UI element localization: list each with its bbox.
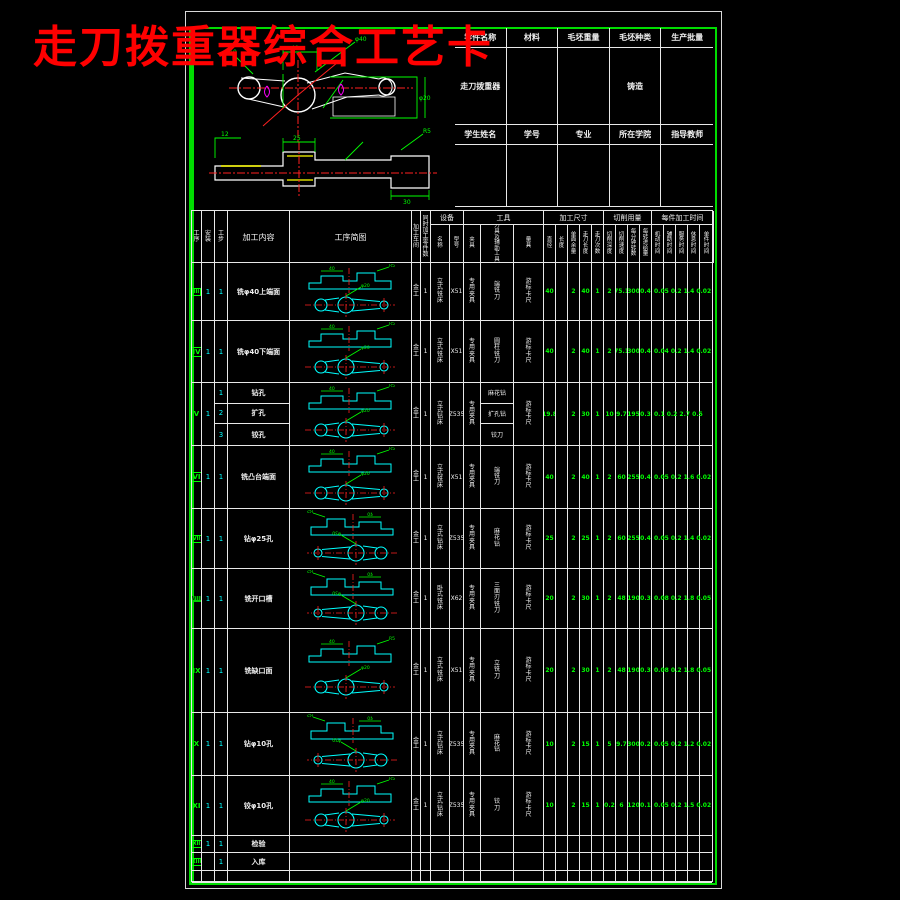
op-value: 1 bbox=[592, 569, 604, 628]
op-tool: 端铣刀 bbox=[481, 263, 514, 320]
op-step-no: 1 bbox=[215, 446, 228, 508]
op-value: 2 bbox=[604, 446, 616, 508]
op-value: 120 bbox=[628, 776, 640, 835]
op-value: 25 bbox=[544, 509, 556, 568]
op-qty bbox=[421, 836, 431, 852]
proc-row bbox=[192, 871, 712, 883]
op-workshop: 金工 bbox=[412, 713, 421, 775]
op-equipment bbox=[431, 871, 450, 882]
op-value: 48 bbox=[616, 629, 628, 712]
op-equipment-model: X62 bbox=[450, 569, 464, 628]
op-seq bbox=[192, 871, 202, 882]
op-seq: VI bbox=[192, 446, 202, 508]
op-tool: 麻花钻 bbox=[481, 713, 514, 775]
svg-text:R5: R5 bbox=[389, 264, 395, 269]
proc-group-header: 每件加工时间 bbox=[652, 211, 714, 225]
info-table: 零件名称材料毛坯重量毛坯种类生产批量走刀拨重器铸造学生姓名学号专业所在学院指导教… bbox=[455, 28, 713, 207]
svg-text:R5: R5 bbox=[423, 128, 431, 135]
proc-row: IV11铣φ40下端面圆柱铣刀40R5φ20金工1立式铣床X51专用夹具游标卡尺… bbox=[192, 321, 712, 383]
proc-col-header: 每分钟转数 bbox=[628, 225, 640, 263]
op-value: 5 bbox=[604, 713, 616, 775]
op-value bbox=[544, 853, 556, 870]
cad-canvas: 40φ40R10φ202512R530 零件名称材料毛坯重量毛坯种类生产批量走刀… bbox=[0, 0, 900, 900]
op-step-no: 1 bbox=[215, 853, 228, 870]
op-equipment-model: X51 bbox=[450, 629, 464, 712]
op-time-cell bbox=[700, 871, 714, 882]
op-times: 0.08 0.2 1.8 0.05 bbox=[654, 595, 711, 602]
op-sketch-svg: 40R5φ20 bbox=[291, 322, 411, 381]
op-value: 19.8 bbox=[544, 383, 556, 445]
op-seq: X bbox=[192, 713, 202, 775]
op-value: 1 bbox=[592, 383, 604, 445]
proc-col-header: 量具 bbox=[514, 225, 544, 263]
op-qty: 1 bbox=[421, 713, 431, 775]
op-value: 2 bbox=[568, 713, 580, 775]
op-tool: 扩孔钻 bbox=[481, 404, 514, 425]
op-value: 190 bbox=[628, 569, 640, 628]
op-value bbox=[544, 871, 556, 882]
op-fixture: 专用夹具 bbox=[464, 263, 481, 320]
op-equipment-model: Z535 bbox=[450, 509, 464, 568]
op-value: 255 bbox=[628, 509, 640, 568]
op-content bbox=[228, 871, 290, 882]
op-value: 2 bbox=[568, 509, 580, 568]
op-sketch bbox=[290, 836, 412, 852]
op-tool bbox=[481, 871, 514, 882]
svg-text:φ20: φ20 bbox=[361, 665, 370, 671]
svg-text:40: 40 bbox=[367, 512, 373, 518]
op-time-cell bbox=[688, 836, 700, 852]
op-value: 0.4 bbox=[640, 263, 652, 320]
op-value: 60 bbox=[616, 446, 628, 508]
op-fixture: 专用夹具 bbox=[464, 509, 481, 568]
op-value bbox=[616, 836, 628, 852]
op-content: 钻孔 bbox=[228, 383, 290, 404]
svg-text:25: 25 bbox=[293, 135, 301, 142]
op-equipment: 立式铣床 bbox=[431, 446, 450, 508]
op-value: 40 bbox=[580, 446, 592, 508]
op-step-no bbox=[215, 871, 228, 882]
op-time-cell bbox=[676, 871, 688, 882]
op-value: 60 bbox=[616, 509, 628, 568]
op-value: 6 bbox=[616, 776, 628, 835]
proc-col-header: 机动时间 bbox=[652, 225, 664, 263]
proc-col-header: 工序简图 bbox=[290, 211, 412, 263]
proc-col-header: 型号 bbox=[450, 225, 464, 263]
info-header: 材料 bbox=[507, 28, 559, 48]
op-value bbox=[604, 836, 616, 852]
op-sketch-svg: 40R5φ20 bbox=[291, 264, 411, 319]
op-value: 2 bbox=[568, 776, 580, 835]
op-content: 入库 bbox=[228, 853, 290, 870]
op-workshop: 金工 bbox=[412, 321, 421, 382]
svg-text:R5: R5 bbox=[306, 510, 312, 515]
op-times: 0.05 0.2 1.4 0.02 bbox=[654, 288, 711, 295]
op-sketch: 40R5φ20 bbox=[290, 446, 412, 508]
op-setup: 1 bbox=[202, 446, 215, 508]
op-setup bbox=[202, 871, 215, 882]
svg-text:φ20: φ20 bbox=[361, 408, 370, 414]
op-value: 75.1 bbox=[616, 263, 628, 320]
op-time-cell bbox=[700, 853, 714, 870]
op-tool bbox=[481, 836, 514, 852]
op-sketch: 40R5φ20 bbox=[290, 569, 412, 628]
op-setup: 1 bbox=[202, 713, 215, 775]
proc-col-header: 走刀长度 bbox=[580, 225, 592, 263]
op-gauge bbox=[514, 871, 544, 882]
op-value bbox=[544, 836, 556, 852]
op-value: 75.1 bbox=[616, 321, 628, 382]
op-time-cell bbox=[664, 836, 676, 852]
svg-text:40: 40 bbox=[329, 266, 335, 272]
op-content: 扩孔 bbox=[228, 404, 290, 425]
svg-text:R5: R5 bbox=[389, 636, 395, 642]
op-value: 0.4 bbox=[640, 446, 652, 508]
op-seq: IX bbox=[192, 629, 202, 712]
op-content: 铰孔 bbox=[228, 424, 290, 445]
svg-text:40: 40 bbox=[329, 324, 335, 330]
op-seq: VIII bbox=[192, 569, 202, 628]
op-value: 300 bbox=[628, 263, 640, 320]
op-step-no: 2 bbox=[215, 404, 228, 425]
op-value: 9.7 bbox=[616, 383, 628, 445]
op-setup: 1 bbox=[202, 629, 215, 712]
svg-text:φ20: φ20 bbox=[332, 591, 341, 597]
op-time-cell bbox=[676, 836, 688, 852]
op-sketch-svg: 40R5φ20 bbox=[291, 510, 411, 567]
op-sketch: 40R5φ20 bbox=[290, 629, 412, 712]
svg-text:R5: R5 bbox=[306, 714, 312, 719]
proc-row: VIII11铣开口槽三面刃铣刀40R5φ20金工1卧式铣床X62专用夹具游标卡尺… bbox=[192, 569, 712, 629]
info-value bbox=[507, 48, 559, 125]
op-value bbox=[628, 871, 640, 882]
op-value bbox=[592, 836, 604, 852]
op-sketch-svg: 40R5φ20 bbox=[291, 777, 411, 834]
op-content: 检验 bbox=[228, 836, 290, 852]
op-tool: 端铣刀 bbox=[481, 446, 514, 508]
proc-group-header: 加工尺寸 bbox=[544, 211, 604, 225]
proc-col-header: 单件时间 bbox=[700, 225, 714, 263]
op-value: 1 bbox=[592, 629, 604, 712]
op-equipment bbox=[431, 836, 450, 852]
op-step-no: 1 bbox=[215, 263, 228, 320]
op-value: 2 bbox=[604, 321, 616, 382]
proc-row: VII11钻φ25孔麻花钻40R5φ20金工1立式钻床Z535专用夹具游标卡尺2… bbox=[192, 509, 712, 569]
op-value: 2 bbox=[568, 383, 580, 445]
op-value: 2 bbox=[568, 263, 580, 320]
info-value bbox=[661, 48, 713, 125]
op-value: 0.2 bbox=[640, 713, 652, 775]
op-value: 2 bbox=[568, 569, 580, 628]
op-value bbox=[640, 871, 652, 882]
op-setup: 1 bbox=[202, 569, 215, 628]
op-step-no: 3 bbox=[215, 424, 228, 445]
op-equipment: 立式铣床 bbox=[431, 629, 450, 712]
op-seq: XII bbox=[192, 836, 202, 852]
info-header: 毛坯重量 bbox=[558, 28, 610, 48]
op-value: 48 bbox=[616, 569, 628, 628]
info-value bbox=[558, 145, 610, 207]
op-qty bbox=[421, 871, 431, 882]
op-seq: VII bbox=[192, 509, 202, 568]
op-workshop: 金工 bbox=[412, 776, 421, 835]
op-equipment: 立式钻床 bbox=[431, 509, 450, 568]
op-seq: IV bbox=[192, 321, 202, 382]
op-tool: 三面刃铣刀 bbox=[481, 569, 514, 628]
op-fixture: 专用夹具 bbox=[464, 446, 481, 508]
proc-group-header: 设备 bbox=[431, 211, 464, 225]
proc-row: XI11铰φ10孔铰刀40R5φ20金工1立式钻床Z535专用夹具游标卡尺102… bbox=[192, 776, 712, 836]
op-equipment-model: X51 bbox=[450, 263, 464, 320]
op-sketch-svg: 40R5φ20 bbox=[291, 384, 411, 444]
proc-col-header: 辅助时间 bbox=[664, 225, 676, 263]
svg-text:φ20: φ20 bbox=[332, 738, 341, 744]
info-header: 指导教师 bbox=[661, 125, 713, 145]
op-fixture: 专用夹具 bbox=[464, 713, 481, 775]
op-value: 10 bbox=[604, 383, 616, 445]
op-sketch bbox=[290, 871, 412, 882]
op-step-no: 1 bbox=[215, 713, 228, 775]
proc-col-header: 休息时间 bbox=[688, 225, 700, 263]
info-value bbox=[610, 145, 662, 207]
info-header: 学生姓名 bbox=[455, 125, 507, 145]
op-tool: 铰刀 bbox=[481, 424, 514, 445]
process-table: 工序安装工步加工内容工序简图加工车间同时加工零件数设备名称型号工具夹具刀具及辅助… bbox=[191, 210, 713, 882]
proc-col-header: 走刀次数 bbox=[592, 225, 604, 263]
op-fixture: 专用夹具 bbox=[464, 383, 481, 445]
op-qty: 1 bbox=[421, 383, 431, 445]
op-workshop bbox=[412, 836, 421, 852]
op-sketch: 40R5φ20 bbox=[290, 263, 412, 320]
op-equipment-model bbox=[450, 836, 464, 852]
proc-col-header: 刀具及辅助工具 bbox=[481, 225, 514, 263]
op-value bbox=[556, 383, 568, 445]
op-value bbox=[556, 629, 568, 712]
op-step-no: 1 bbox=[215, 776, 228, 835]
op-time-cell bbox=[688, 871, 700, 882]
op-fixture bbox=[464, 871, 481, 882]
op-setup: 1 bbox=[202, 509, 215, 568]
op-value: 0.3 bbox=[640, 383, 652, 445]
op-time-cell bbox=[688, 853, 700, 870]
op-seq: XI bbox=[192, 776, 202, 835]
svg-text:R5: R5 bbox=[306, 570, 312, 575]
op-value: 40 bbox=[580, 263, 592, 320]
op-value bbox=[616, 871, 628, 882]
op-tool: 麻花钻 bbox=[481, 509, 514, 568]
op-sketch-svg: 40R5φ20 bbox=[291, 447, 411, 507]
op-equipment-model bbox=[450, 871, 464, 882]
info-header: 毛坯种类 bbox=[610, 28, 662, 48]
op-workshop: 金工 bbox=[412, 509, 421, 568]
op-times: 0.05 0.2 1.2 0.02 bbox=[654, 741, 711, 748]
op-equipment: 立式钻床 bbox=[431, 713, 450, 775]
op-value bbox=[580, 853, 592, 870]
op-time-cell bbox=[652, 853, 664, 870]
proc-col-header: 加工车间 bbox=[412, 211, 421, 263]
op-gauge: 游标卡尺 bbox=[514, 383, 544, 445]
op-qty: 1 bbox=[421, 569, 431, 628]
proc-group-header: 切削用量 bbox=[604, 211, 652, 225]
op-sketch: 40R5φ20 bbox=[290, 383, 412, 445]
op-value: 190 bbox=[628, 629, 640, 712]
op-seq: V bbox=[192, 383, 202, 445]
op-gauge: 游标卡尺 bbox=[514, 509, 544, 568]
op-value: 1 bbox=[592, 321, 604, 382]
op-content: 铣缺口面 bbox=[228, 629, 290, 712]
op-sketch-svg: 40R5φ20 bbox=[291, 630, 411, 711]
svg-text:40: 40 bbox=[367, 572, 373, 578]
op-content: 钻φ25孔 bbox=[228, 509, 290, 568]
op-value: 2 bbox=[604, 569, 616, 628]
op-workshop bbox=[412, 853, 421, 870]
proc-header: 工序安装工步加工内容工序简图加工车间同时加工零件数设备名称型号工具夹具刀具及辅助… bbox=[192, 211, 714, 263]
proc-row: X11钻φ10孔麻花钻40R5φ20金工1立式钻床Z535专用夹具游标卡尺102… bbox=[192, 713, 712, 776]
svg-text:φ20: φ20 bbox=[361, 471, 370, 477]
op-qty: 1 bbox=[421, 776, 431, 835]
op-gauge: 游标卡尺 bbox=[514, 446, 544, 508]
proc-col-header: 安装 bbox=[202, 211, 215, 263]
op-value: 2 bbox=[604, 629, 616, 712]
op-value: 1 bbox=[592, 446, 604, 508]
proc-col-header: 切削速度 bbox=[616, 225, 628, 263]
svg-text:φ20: φ20 bbox=[332, 531, 341, 537]
proc-col-header: 单面余量 bbox=[568, 225, 580, 263]
proc-group-header: 工具 bbox=[464, 211, 544, 225]
op-value bbox=[592, 871, 604, 882]
op-equipment-model: Z535 bbox=[450, 383, 464, 445]
proc-col-header: 每转进给量 bbox=[640, 225, 652, 263]
op-value: 40 bbox=[544, 321, 556, 382]
op-value: 40 bbox=[544, 446, 556, 508]
op-step-no: 1 bbox=[215, 383, 228, 404]
info-value bbox=[455, 145, 507, 207]
op-fixture bbox=[464, 853, 481, 870]
op-gauge: 游标卡尺 bbox=[514, 263, 544, 320]
op-content: 铣φ40下端面 bbox=[228, 321, 290, 382]
op-value bbox=[628, 836, 640, 852]
op-tool bbox=[481, 853, 514, 870]
proc-col-header: 工步 bbox=[215, 211, 228, 263]
op-value bbox=[568, 871, 580, 882]
op-workshop: 金工 bbox=[412, 446, 421, 508]
proc-col-header: 切削深度 bbox=[604, 225, 616, 263]
svg-text:φ20: φ20 bbox=[361, 798, 370, 804]
op-value: 25 bbox=[580, 509, 592, 568]
op-qty: 1 bbox=[421, 263, 431, 320]
info-header: 生产批量 bbox=[661, 28, 713, 48]
op-value bbox=[592, 853, 604, 870]
info-header: 所在学院 bbox=[610, 125, 662, 145]
svg-text:40: 40 bbox=[367, 716, 373, 722]
op-value: 9.7 bbox=[616, 713, 628, 775]
info-value bbox=[661, 145, 713, 207]
op-value: 2 bbox=[568, 629, 580, 712]
info-header: 学号 bbox=[507, 125, 559, 145]
op-value bbox=[556, 836, 568, 852]
op-gauge: 游标卡尺 bbox=[514, 321, 544, 382]
op-equipment: 立式钻床 bbox=[431, 383, 450, 445]
op-time-cell bbox=[652, 836, 664, 852]
op-gauge bbox=[514, 853, 544, 870]
svg-text:12: 12 bbox=[221, 131, 229, 138]
svg-text:40: 40 bbox=[329, 779, 335, 785]
op-qty: 1 bbox=[421, 321, 431, 382]
proc-row: IX11铣缺口面立铣刀40R5φ20金工1立式铣床X51专用夹具游标卡尺2023… bbox=[192, 629, 712, 713]
op-value: 10 bbox=[544, 776, 556, 835]
svg-text:R5: R5 bbox=[389, 777, 395, 782]
op-tool: 立铣刀 bbox=[481, 629, 514, 712]
op-time-cell bbox=[700, 836, 714, 852]
op-time-cell bbox=[664, 853, 676, 870]
proc-row: VI11铣凸台端面端铣刀40R5φ20金工1立式铣床X51专用夹具游标卡尺402… bbox=[192, 446, 712, 509]
op-value: 10 bbox=[544, 713, 556, 775]
proc-col-header: 夹具 bbox=[464, 225, 481, 263]
op-value: 1 bbox=[592, 263, 604, 320]
proc-col-header: 名称 bbox=[431, 225, 450, 263]
op-value: 30 bbox=[580, 629, 592, 712]
svg-text:φ20: φ20 bbox=[361, 283, 370, 289]
svg-text:40: 40 bbox=[329, 386, 335, 392]
svg-text:R5: R5 bbox=[389, 384, 395, 389]
op-sketch bbox=[290, 853, 412, 870]
op-value: 0.1 bbox=[640, 776, 652, 835]
info-value bbox=[558, 48, 610, 125]
op-sketch: 40R5φ20 bbox=[290, 776, 412, 835]
op-equipment: 立式钻床 bbox=[431, 776, 450, 835]
op-value: 30 bbox=[580, 383, 592, 445]
op-workshop: 金工 bbox=[412, 383, 421, 445]
sheet-title: 走刀拨重器综合工艺卡 bbox=[33, 26, 493, 70]
op-value: 15 bbox=[580, 713, 592, 775]
op-qty bbox=[421, 853, 431, 870]
op-qty: 1 bbox=[421, 629, 431, 712]
svg-text:40: 40 bbox=[329, 639, 335, 645]
op-value bbox=[568, 853, 580, 870]
op-workshop: 金工 bbox=[412, 629, 421, 712]
svg-text:40: 40 bbox=[329, 449, 335, 455]
op-setup: 1 bbox=[202, 836, 215, 852]
op-value bbox=[628, 853, 640, 870]
op-setup: 1 bbox=[202, 263, 215, 320]
proc-row: III11铣φ40上端面端铣刀40R5φ20金工1立式铣床X51专用夹具游标卡尺… bbox=[192, 263, 712, 321]
op-equipment-model: X51 bbox=[450, 321, 464, 382]
op-value: 255 bbox=[628, 446, 640, 508]
op-fixture: 专用夹具 bbox=[464, 629, 481, 712]
op-times: 0.05 0.2 1.4 0.02 bbox=[654, 535, 711, 542]
op-value bbox=[580, 836, 592, 852]
op-value: 0.2 bbox=[604, 776, 616, 835]
op-setup: 1 bbox=[202, 321, 215, 382]
op-qty: 1 bbox=[421, 446, 431, 508]
op-step-no: 1 bbox=[215, 629, 228, 712]
op-time-cell bbox=[664, 871, 676, 882]
op-times: 0.08 0.2 1.8 0.05 bbox=[654, 667, 711, 674]
op-times: 0.04 0.2 1.4 0.02 bbox=[654, 348, 711, 355]
op-value: 40 bbox=[580, 321, 592, 382]
op-value bbox=[556, 713, 568, 775]
op-seq: XIII bbox=[192, 853, 202, 870]
svg-text:φ20: φ20 bbox=[361, 345, 370, 351]
op-equipment: 立式铣床 bbox=[431, 321, 450, 382]
op-value: 30 bbox=[580, 569, 592, 628]
op-value bbox=[580, 871, 592, 882]
op-value: 2 bbox=[604, 509, 616, 568]
op-seq: III bbox=[192, 263, 202, 320]
op-workshop: 金工 bbox=[412, 263, 421, 320]
proc-row: XIII1入库 bbox=[192, 853, 712, 871]
op-value: 0.3 bbox=[640, 629, 652, 712]
